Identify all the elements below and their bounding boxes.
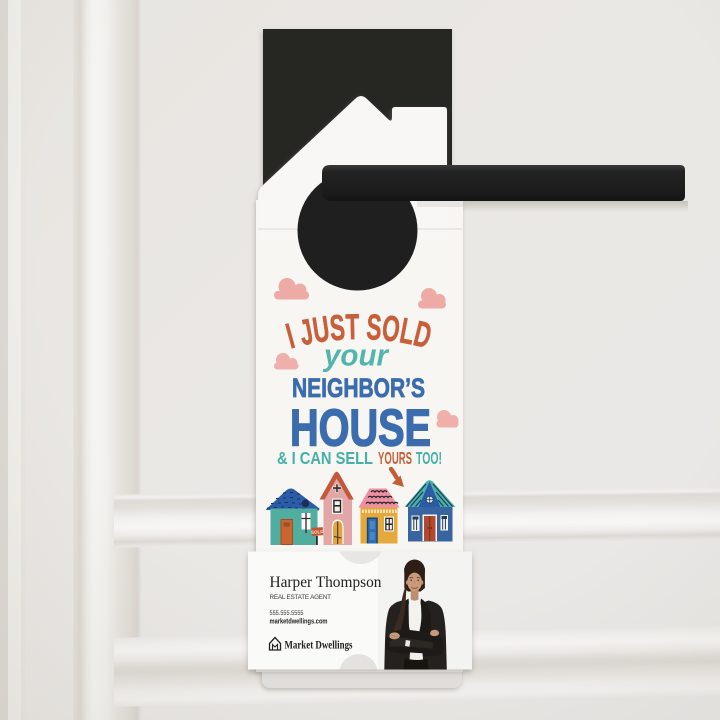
svg-text:555.555.5555: 555.555.5555 bbox=[270, 610, 304, 617]
svg-text:REAL ESTATE AGENT: REAL ESTATE AGENT bbox=[270, 594, 332, 601]
svg-text:SOLD: SOLD bbox=[311, 529, 325, 535]
svg-text:& I CAN SELL: & I CAN SELL bbox=[277, 448, 373, 468]
svg-text:marketdwellings.com: marketdwellings.com bbox=[270, 619, 328, 626]
svg-text:Harper Thompson: Harper Thompson bbox=[270, 574, 382, 591]
svg-text:your: your bbox=[322, 338, 390, 373]
svg-text:YOURS: YOURS bbox=[378, 448, 412, 468]
svg-text:TOO!: TOO! bbox=[416, 448, 442, 468]
svg-text:Market Dwellings: Market Dwellings bbox=[285, 640, 353, 652]
svg-text:NEIGHBOR’S: NEIGHBOR’S bbox=[292, 373, 425, 403]
